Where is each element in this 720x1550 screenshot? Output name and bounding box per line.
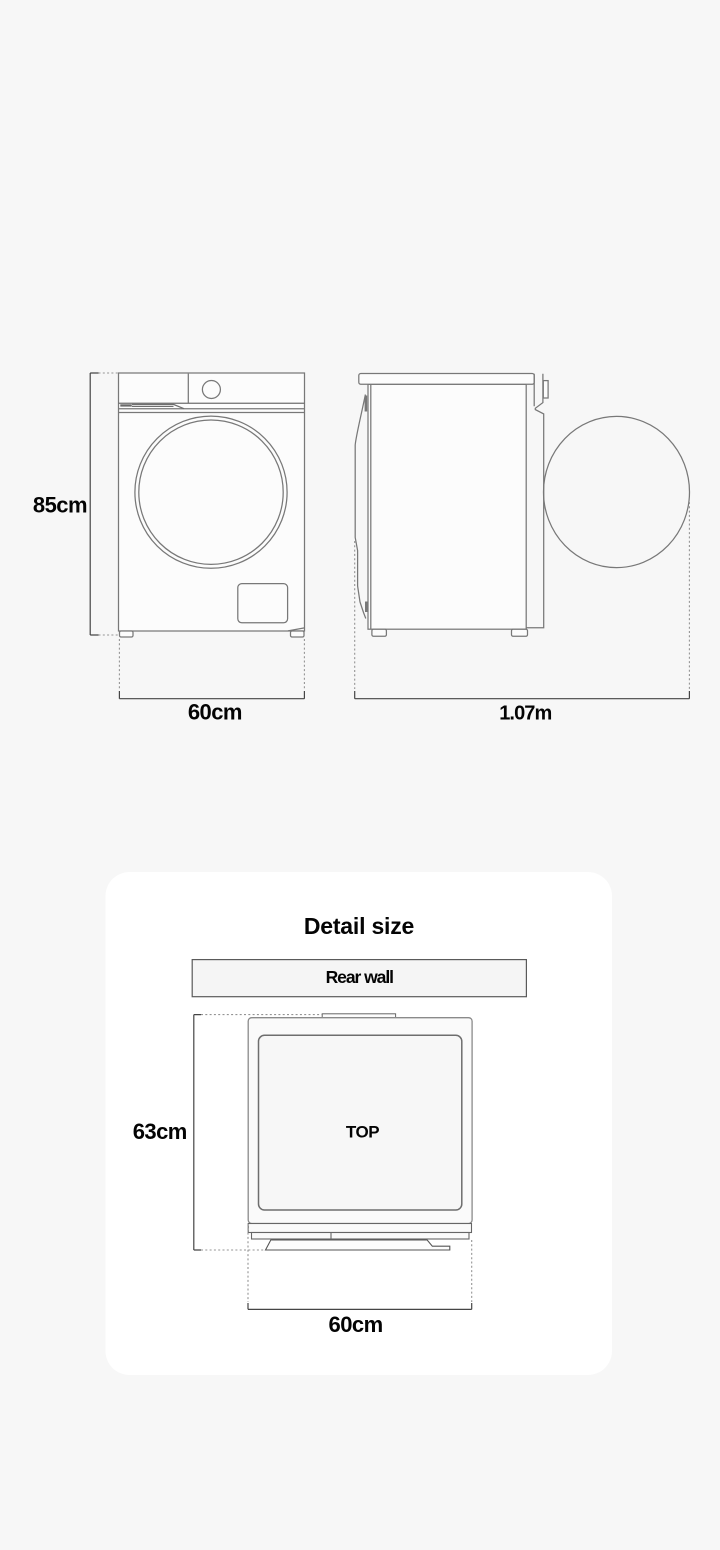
svg-text:85cm: 85cm [33, 492, 87, 517]
svg-text:60cm: 60cm [188, 700, 242, 725]
svg-text:Rear wall: Rear wall [326, 967, 394, 987]
svg-text:Detail size: Detail size [304, 913, 414, 939]
svg-text:60cm: 60cm [329, 1312, 383, 1337]
svg-text:1.07m: 1.07m [499, 702, 551, 724]
svg-text:TOP: TOP [346, 1123, 379, 1142]
svg-text:63cm: 63cm [133, 1119, 187, 1144]
